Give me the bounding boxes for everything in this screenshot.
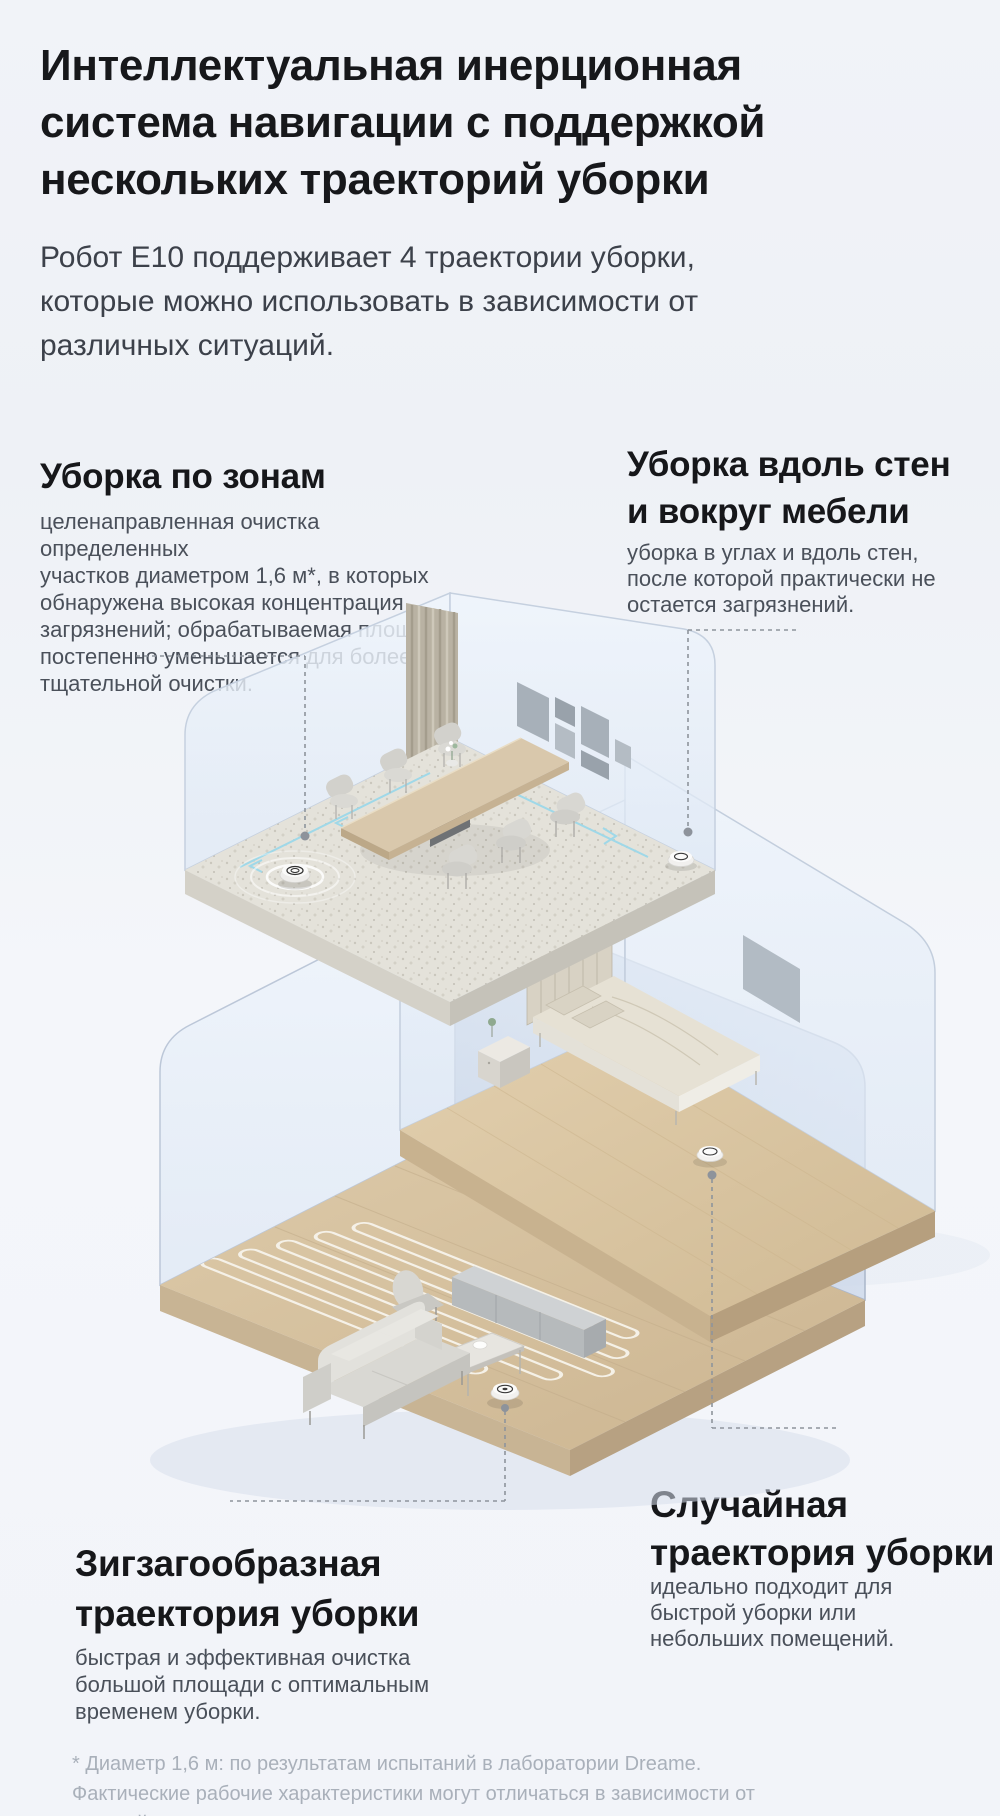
coffee-table — [437, 1333, 524, 1396]
dining-chairs-near — [442, 790, 588, 889]
random-path-robot — [693, 1146, 727, 1168]
living-room — [160, 890, 865, 1476]
edge-cleaning-robot — [665, 851, 697, 871]
bedroom-floor — [400, 1025, 935, 1316]
nightstand — [478, 1018, 530, 1088]
bedroom-window — [743, 935, 800, 1023]
feature-desc-edge: уборка в углах и вдоль стен, после котор… — [627, 540, 967, 618]
bed — [525, 910, 760, 1125]
product-feature-section: Интеллектуальная инерционная система нав… — [0, 0, 1000, 1816]
callout-leader-lines — [136, 630, 838, 1501]
page-title: Интеллектуальная инерционная система нав… — [40, 37, 970, 208]
armchair — [389, 1267, 444, 1331]
tv-console — [452, 1266, 606, 1358]
dining-chairs-far — [323, 720, 466, 819]
feature-title-zigzag: Зигзагообразная траектория уборки — [75, 1539, 419, 1639]
feature-desc-random: идеально подходит для быстрой уборки или… — [650, 1574, 970, 1652]
leader-zigzag — [230, 1411, 505, 1501]
callout-dots — [301, 828, 717, 1413]
edge-cleaning-path — [240, 772, 648, 872]
feature-title-random: Случайная траектория уборки — [650, 1481, 994, 1577]
house-cutaway-illustration — [0, 555, 1000, 1515]
sofa — [303, 1302, 470, 1439]
living-left-glass-wall — [160, 890, 455, 1285]
bedroom-left-glass-wall — [400, 800, 625, 1130]
feature-title-zone: Уборка по зонам — [40, 453, 326, 500]
leader-edge — [688, 630, 798, 829]
tv — [488, 1185, 573, 1299]
zigzag-path-robot — [487, 1383, 523, 1409]
bedroom-right-glass-wall — [625, 755, 935, 1211]
living-floor — [160, 1135, 865, 1450]
feature-desc-zigzag: быстрая и эффективная очистка большой пл… — [75, 1644, 455, 1725]
bedroom — [400, 755, 935, 1342]
dining-right-glass-wall — [450, 593, 715, 870]
feature-desc-zone: целенаправленная очистка определенных уч… — [40, 508, 460, 697]
zigzag-cleaning-path — [198, 1203, 671, 1405]
feature-title-edge: Уборка вдоль стен и вокруг мебели — [627, 441, 951, 535]
living-back-wall — [455, 890, 865, 1300]
zone-cleaning-robot — [235, 851, 355, 903]
leader-random — [712, 1179, 838, 1428]
footnote: * Диаметр 1,6 м: по результатам испытани… — [72, 1749, 952, 1816]
picture-frames — [517, 674, 631, 791]
intro-paragraph: Робот E10 поддерживает 4 траектории убор… — [40, 236, 820, 368]
dining-floor — [185, 738, 715, 1002]
dining-table — [341, 738, 569, 876]
ground-shadows — [150, 1223, 990, 1510]
